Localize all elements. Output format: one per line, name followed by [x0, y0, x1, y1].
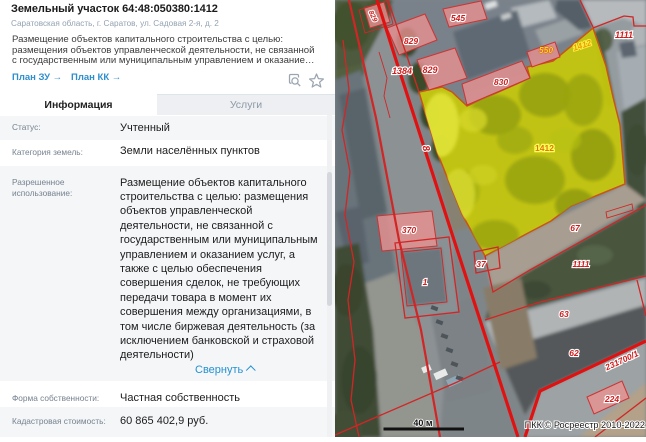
svg-text:67: 67: [570, 223, 581, 233]
svg-text:37: 37: [476, 259, 487, 269]
svg-text:1111: 1111: [572, 259, 589, 269]
svg-text:63: 63: [559, 309, 569, 319]
svg-text:550: 550: [539, 45, 553, 55]
svg-text:1384: 1384: [392, 66, 412, 76]
svg-text:1: 1: [423, 277, 428, 287]
svg-text:1111: 1111: [615, 30, 633, 40]
svg-text:224: 224: [604, 394, 619, 404]
svg-text:1412: 1412: [535, 143, 554, 153]
svg-text:830: 830: [494, 77, 508, 87]
svg-text:829: 829: [422, 65, 437, 75]
svg-text:370: 370: [402, 225, 416, 235]
svg-text:829: 829: [404, 36, 418, 46]
svg-text:ПКК © Росреестр 2010-2022: ПКК © Росреестр 2010-2022: [525, 420, 645, 430]
svg-text:545: 545: [451, 13, 465, 23]
svg-text:40 м: 40 м: [413, 418, 433, 428]
svg-text:62: 62: [569, 348, 579, 358]
